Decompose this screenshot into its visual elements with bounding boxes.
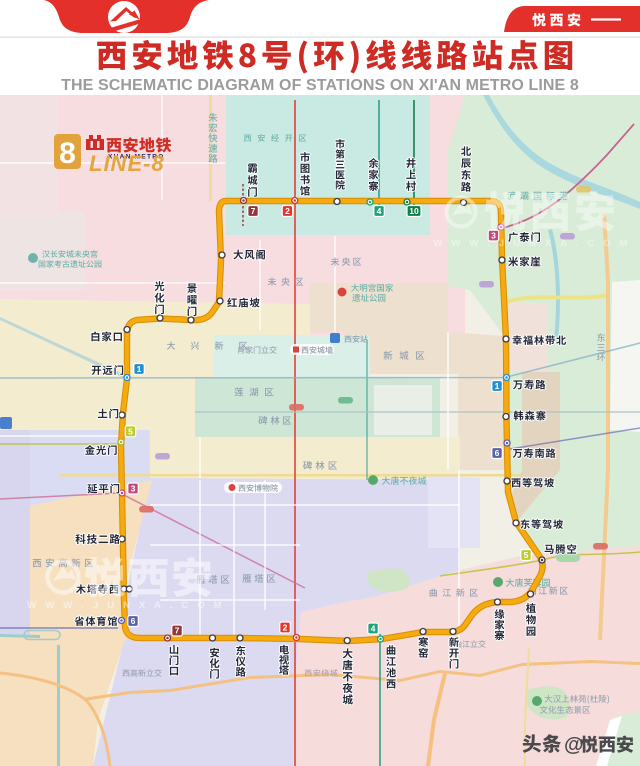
svg-text:6: 6 <box>495 448 500 458</box>
svg-text:LINE-8: LINE-8 <box>89 151 165 176</box>
svg-text:W W W . J U N X A . C O M: W W W . J U N X A . C O M <box>27 600 225 611</box>
svg-text:3: 3 <box>131 484 136 494</box>
svg-text:@: @ <box>564 734 584 756</box>
svg-text:1: 1 <box>137 364 142 374</box>
svg-text:8: 8 <box>59 137 76 170</box>
svg-text:7: 7 <box>175 626 180 636</box>
svg-text:THE SCHEMATIC DIAGRAM OF STATI: THE SCHEMATIC DIAGRAM OF STATIONS ON XI'… <box>61 77 579 94</box>
svg-text:W W W . J U N X A . C O M: W W W . J U N X A . C O M <box>433 238 631 249</box>
svg-text:10: 10 <box>409 206 419 216</box>
svg-text:2: 2 <box>285 206 290 216</box>
svg-text:7: 7 <box>251 206 256 216</box>
svg-text:4: 4 <box>371 624 376 634</box>
svg-text:6: 6 <box>131 616 136 626</box>
svg-text:5: 5 <box>128 426 133 436</box>
svg-text:4: 4 <box>377 206 382 216</box>
svg-text:5: 5 <box>524 550 529 560</box>
svg-text:1: 1 <box>495 381 500 391</box>
svg-text:2: 2 <box>283 623 288 633</box>
